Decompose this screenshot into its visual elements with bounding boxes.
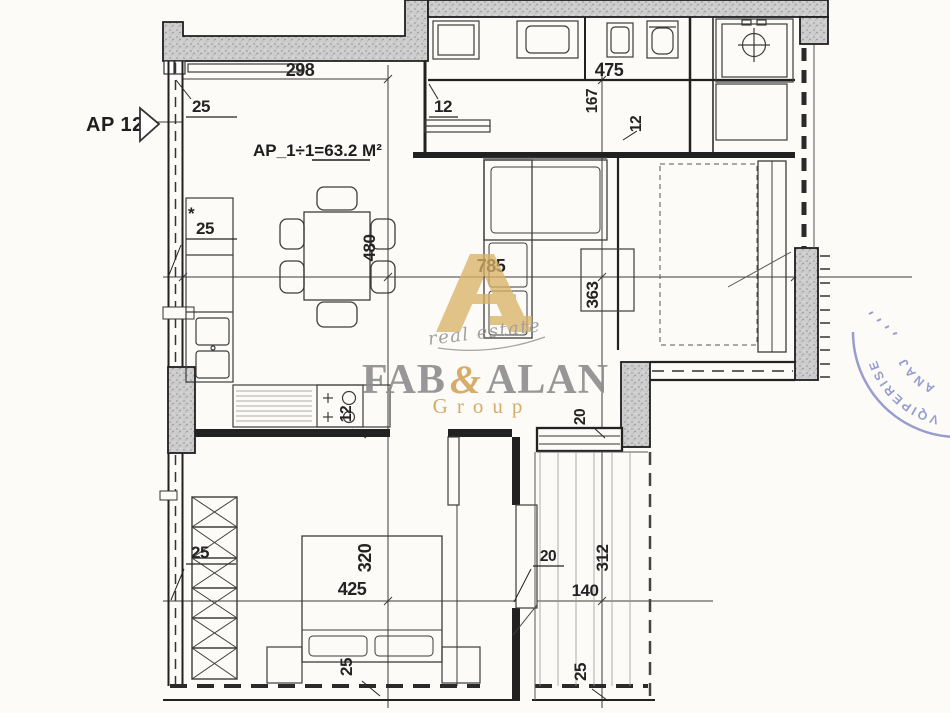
shower-anteroom (716, 84, 787, 140)
brand-group: Group (433, 394, 532, 418)
kitchen-sink-basin-2 (196, 351, 229, 378)
wall-corridor-bottom (413, 152, 795, 158)
dim-12-kitchen: 12 (338, 406, 355, 422)
dim-20-balcony: 20 (540, 548, 556, 565)
chair (317, 302, 357, 327)
dim-425: 425 (338, 579, 367, 599)
dim-363: 363 (583, 282, 602, 309)
dim-25-wardrobe: 25 (191, 543, 209, 562)
dim-475: 475 (595, 60, 624, 80)
chair (280, 219, 304, 249)
wall-top (428, 0, 828, 17)
dim-25-top: 25 (192, 97, 210, 116)
pillar-left (168, 367, 195, 453)
dim-star: * (188, 204, 195, 223)
chair (317, 187, 357, 210)
wall-bedroom-top-left (195, 429, 390, 437)
pillow (375, 636, 433, 656)
pillar-right (795, 248, 818, 380)
burner-icon (343, 392, 356, 405)
wall-top-right-block (800, 17, 828, 44)
area-label: AP_1÷1=63.2 M² (253, 141, 382, 160)
official-stamp: VQIPERISE ANAJ (853, 312, 950, 437)
pillow (309, 636, 367, 656)
area-prefix: AP_1÷1= (253, 141, 324, 160)
bedroom-door (448, 437, 459, 505)
stamp-arc-text-2: ANAJ (895, 354, 937, 395)
dim-25-bed: 25 (337, 658, 356, 676)
dim-480: 480 (360, 235, 379, 262)
nightstand (442, 647, 480, 683)
sofa-chaise (484, 160, 607, 240)
dim-320: 320 (355, 543, 375, 572)
nightstand (267, 647, 302, 683)
wall-bedroom-top-right (448, 429, 512, 437)
dim-12-hall: 12 (628, 116, 645, 132)
apartment-marker: AP 12 (86, 108, 159, 141)
marker-arrow-icon (140, 108, 159, 141)
dim-25-window: 25 (196, 219, 214, 238)
dim-140: 140 (572, 581, 599, 600)
pillar-ticks (820, 256, 830, 377)
balcony (535, 452, 648, 700)
dim-167: 167 (584, 89, 601, 113)
area-value: 63.2 M² (324, 141, 382, 160)
watermark: real estate FAB&ALAN Group (362, 254, 609, 418)
dim-298: 298 (286, 60, 315, 80)
dim-12-entry: 12 (434, 97, 452, 116)
kitchen-sink-basin-1 (196, 318, 229, 345)
wall-top-left (163, 0, 428, 61)
rug (660, 164, 757, 345)
svg-text:AP_1÷1=63.2 M²: AP_1÷1=63.2 M² (253, 141, 382, 160)
washing-machine (433, 21, 479, 59)
pillar-balcony (621, 362, 650, 447)
svg-text:ANAJ: ANAJ (895, 354, 937, 395)
solid-walls (195, 152, 795, 700)
wall-bedroom-right-lower (512, 608, 520, 700)
floor-plan-drawing: AP 12 AP_1÷1=63.2 M² 298 475 25 12 167 1… (0, 0, 950, 713)
wall-bedroom-right-upper (512, 437, 520, 505)
apartment-marker-label: AP 12 (86, 114, 144, 136)
dim-25-balcony: 25 (571, 663, 590, 681)
dim-312: 312 (593, 545, 612, 572)
dim-20-hall: 20 (572, 409, 589, 425)
floorplan-page: AP 12 AP_1÷1=63.2 M² 298 475 25 12 167 1… (0, 0, 950, 713)
